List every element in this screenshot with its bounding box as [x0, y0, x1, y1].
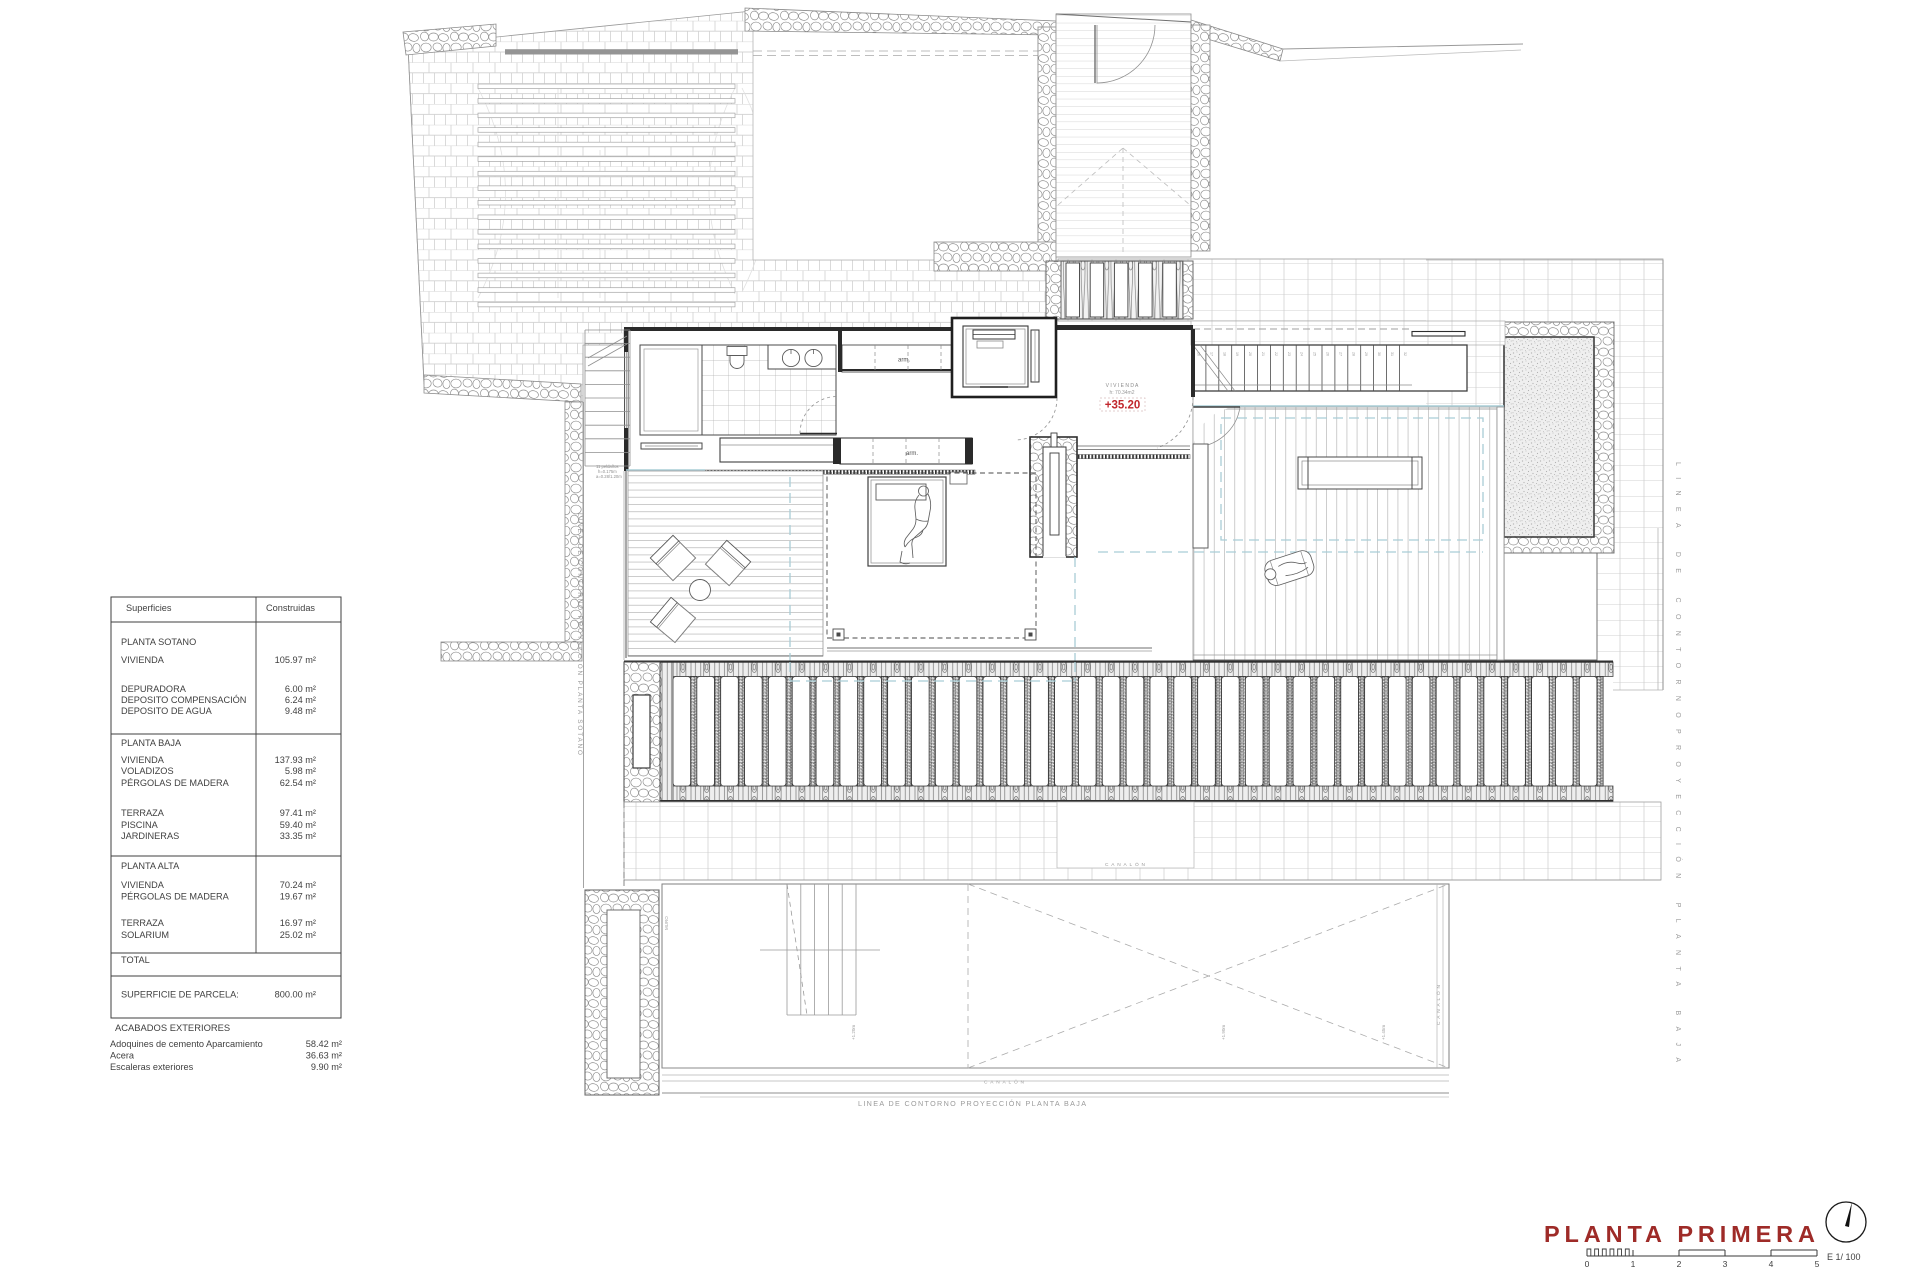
svg-text:36.63 m²: 36.63 m²: [306, 1051, 342, 1061]
svg-text:DEPOSITO DE AGUA: DEPOSITO DE AGUA: [121, 706, 213, 716]
svg-text:27: 27: [1338, 352, 1342, 356]
svg-text:+1.20m: +1.20m: [851, 1025, 856, 1040]
svg-text:137.93 m²: 137.93 m²: [275, 755, 316, 765]
svg-text:105.97 m²: 105.97 m²: [275, 655, 316, 665]
svg-text:VIVIENDA: VIVIENDA: [121, 755, 165, 765]
svg-text:6.24 m²: 6.24 m²: [285, 695, 316, 705]
svg-text:TOTAL: TOTAL: [121, 955, 150, 965]
svg-text:31: 31: [1390, 352, 1394, 356]
svg-text:Construidas: Construidas: [266, 603, 315, 613]
svg-text:0: 0: [1585, 1259, 1590, 1269]
svg-text:58.42 m²: 58.42 m²: [306, 1039, 342, 1049]
svg-text:25.02 m²: 25.02 m²: [280, 930, 316, 940]
svg-text:Acera: Acera: [110, 1051, 135, 1061]
svg-text:VOLADIZOS: VOLADIZOS: [121, 766, 174, 776]
svg-text:4: 4: [1769, 1259, 1774, 1269]
svg-text:19: 19: [1235, 352, 1239, 356]
svg-text:Superficies: Superficies: [126, 603, 172, 613]
svg-text:32: 32: [1403, 352, 1407, 356]
svg-text:23: 23: [1287, 352, 1291, 356]
svg-text:29: 29: [1364, 352, 1368, 356]
svg-text:17: 17: [1209, 352, 1213, 356]
svg-text:SUPERFICIE DE PARCELA:: SUPERFICIE DE PARCELA:: [121, 990, 239, 1000]
svg-text:9.48 m²: 9.48 m²: [285, 706, 316, 716]
svg-text:59.40 m²: 59.40 m²: [280, 820, 316, 830]
svg-text:33.35 m²: 33.35 m²: [280, 831, 316, 841]
svg-text:VIVIENDA: VIVIENDA: [121, 655, 165, 665]
svg-text:PLANTA BAJA: PLANTA BAJA: [121, 738, 182, 748]
svg-text:PÉRGOLAS DE MADERA: PÉRGOLAS DE MADERA: [121, 778, 230, 788]
svg-text:Adoquines de cemento Aparcamie: Adoquines de cemento Aparcamiento: [110, 1039, 263, 1049]
svg-text:arm.: arm.: [898, 358, 910, 364]
svg-text:a=0.28/1.20m: a=0.28/1.20m: [596, 474, 622, 479]
svg-text:16: 16: [1197, 352, 1201, 356]
svg-text:LINEA DE CONTORNO PROYECCIÓN P: LINEA DE CONTORNO PROYECCIÓN PLANTA BAJA: [858, 1099, 1086, 1108]
svg-text:+35.20: +35.20: [1105, 400, 1141, 412]
svg-text:22: 22: [1274, 352, 1278, 356]
svg-text:800.00 m²: 800.00 m²: [275, 990, 316, 1000]
svg-text:TERRAZA: TERRAZA: [121, 918, 165, 928]
svg-text:SOLARIUM: SOLARIUM: [121, 930, 169, 940]
svg-text:TERRAZA: TERRAZA: [121, 808, 165, 818]
svg-text:PÉRGOLAS DE MADERA: PÉRGOLAS DE MADERA: [121, 892, 230, 902]
svg-text:PLANTA ALTA: PLANTA ALTA: [121, 861, 180, 871]
svg-text:DEPURADORA: DEPURADORA: [121, 684, 187, 694]
svg-text:h: 70.34m2: h: 70.34m2: [1109, 390, 1134, 396]
svg-text:VIVIENDA: VIVIENDA: [121, 880, 165, 890]
svg-text:2: 2: [1677, 1259, 1682, 1269]
svg-text:JARDINERAS: JARDINERAS: [121, 831, 179, 841]
svg-text:arm.: arm.: [906, 451, 918, 457]
svg-text:PISCINA: PISCINA: [121, 820, 159, 830]
svg-text:97.41 m²: 97.41 m²: [280, 808, 316, 818]
svg-text:30: 30: [1377, 352, 1381, 356]
svg-text:5: 5: [1815, 1259, 1820, 1269]
svg-text:26: 26: [1326, 352, 1330, 356]
svg-text:19.67 m²: 19.67 m²: [280, 892, 316, 902]
svg-text:3: 3: [1723, 1259, 1728, 1269]
svg-text:+1.90m: +1.90m: [1221, 1025, 1226, 1040]
svg-text:6.00 m²: 6.00 m²: [285, 684, 316, 694]
svg-text:+1.45m: +1.45m: [1381, 1025, 1386, 1040]
svg-text:E 1/ 100: E 1/ 100: [1827, 1252, 1861, 1262]
svg-text:DEPOSITO COMPENSACIÓN: DEPOSITO COMPENSACIÓN: [121, 695, 246, 705]
svg-text:24: 24: [1300, 352, 1304, 356]
svg-text:16.97 m²: 16.97 m²: [280, 918, 316, 928]
svg-text:20: 20: [1248, 352, 1252, 356]
svg-text:V I V I E N D A: V I V I E N D A: [1106, 383, 1139, 389]
svg-text:62.54 m²: 62.54 m²: [280, 778, 316, 788]
svg-text:70.24 m²: 70.24 m²: [280, 880, 316, 890]
svg-text:1: 1: [1631, 1259, 1636, 1269]
svg-text:5.98 m²: 5.98 m²: [285, 766, 316, 776]
svg-text:ACABADOS EXTERIORES: ACABADOS EXTERIORES: [115, 1022, 230, 1033]
svg-text:28: 28: [1351, 352, 1355, 356]
svg-text:PLANTA SOTANO: PLANTA SOTANO: [121, 637, 196, 647]
svg-text:21: 21: [1261, 352, 1265, 356]
svg-text:Escaleras exteriores: Escaleras exteriores: [110, 1062, 194, 1072]
svg-text:25: 25: [1313, 352, 1317, 356]
svg-text:MURO: MURO: [664, 916, 669, 930]
svg-text:18: 18: [1222, 352, 1226, 356]
svg-text:9.90 m²: 9.90 m²: [311, 1062, 342, 1072]
